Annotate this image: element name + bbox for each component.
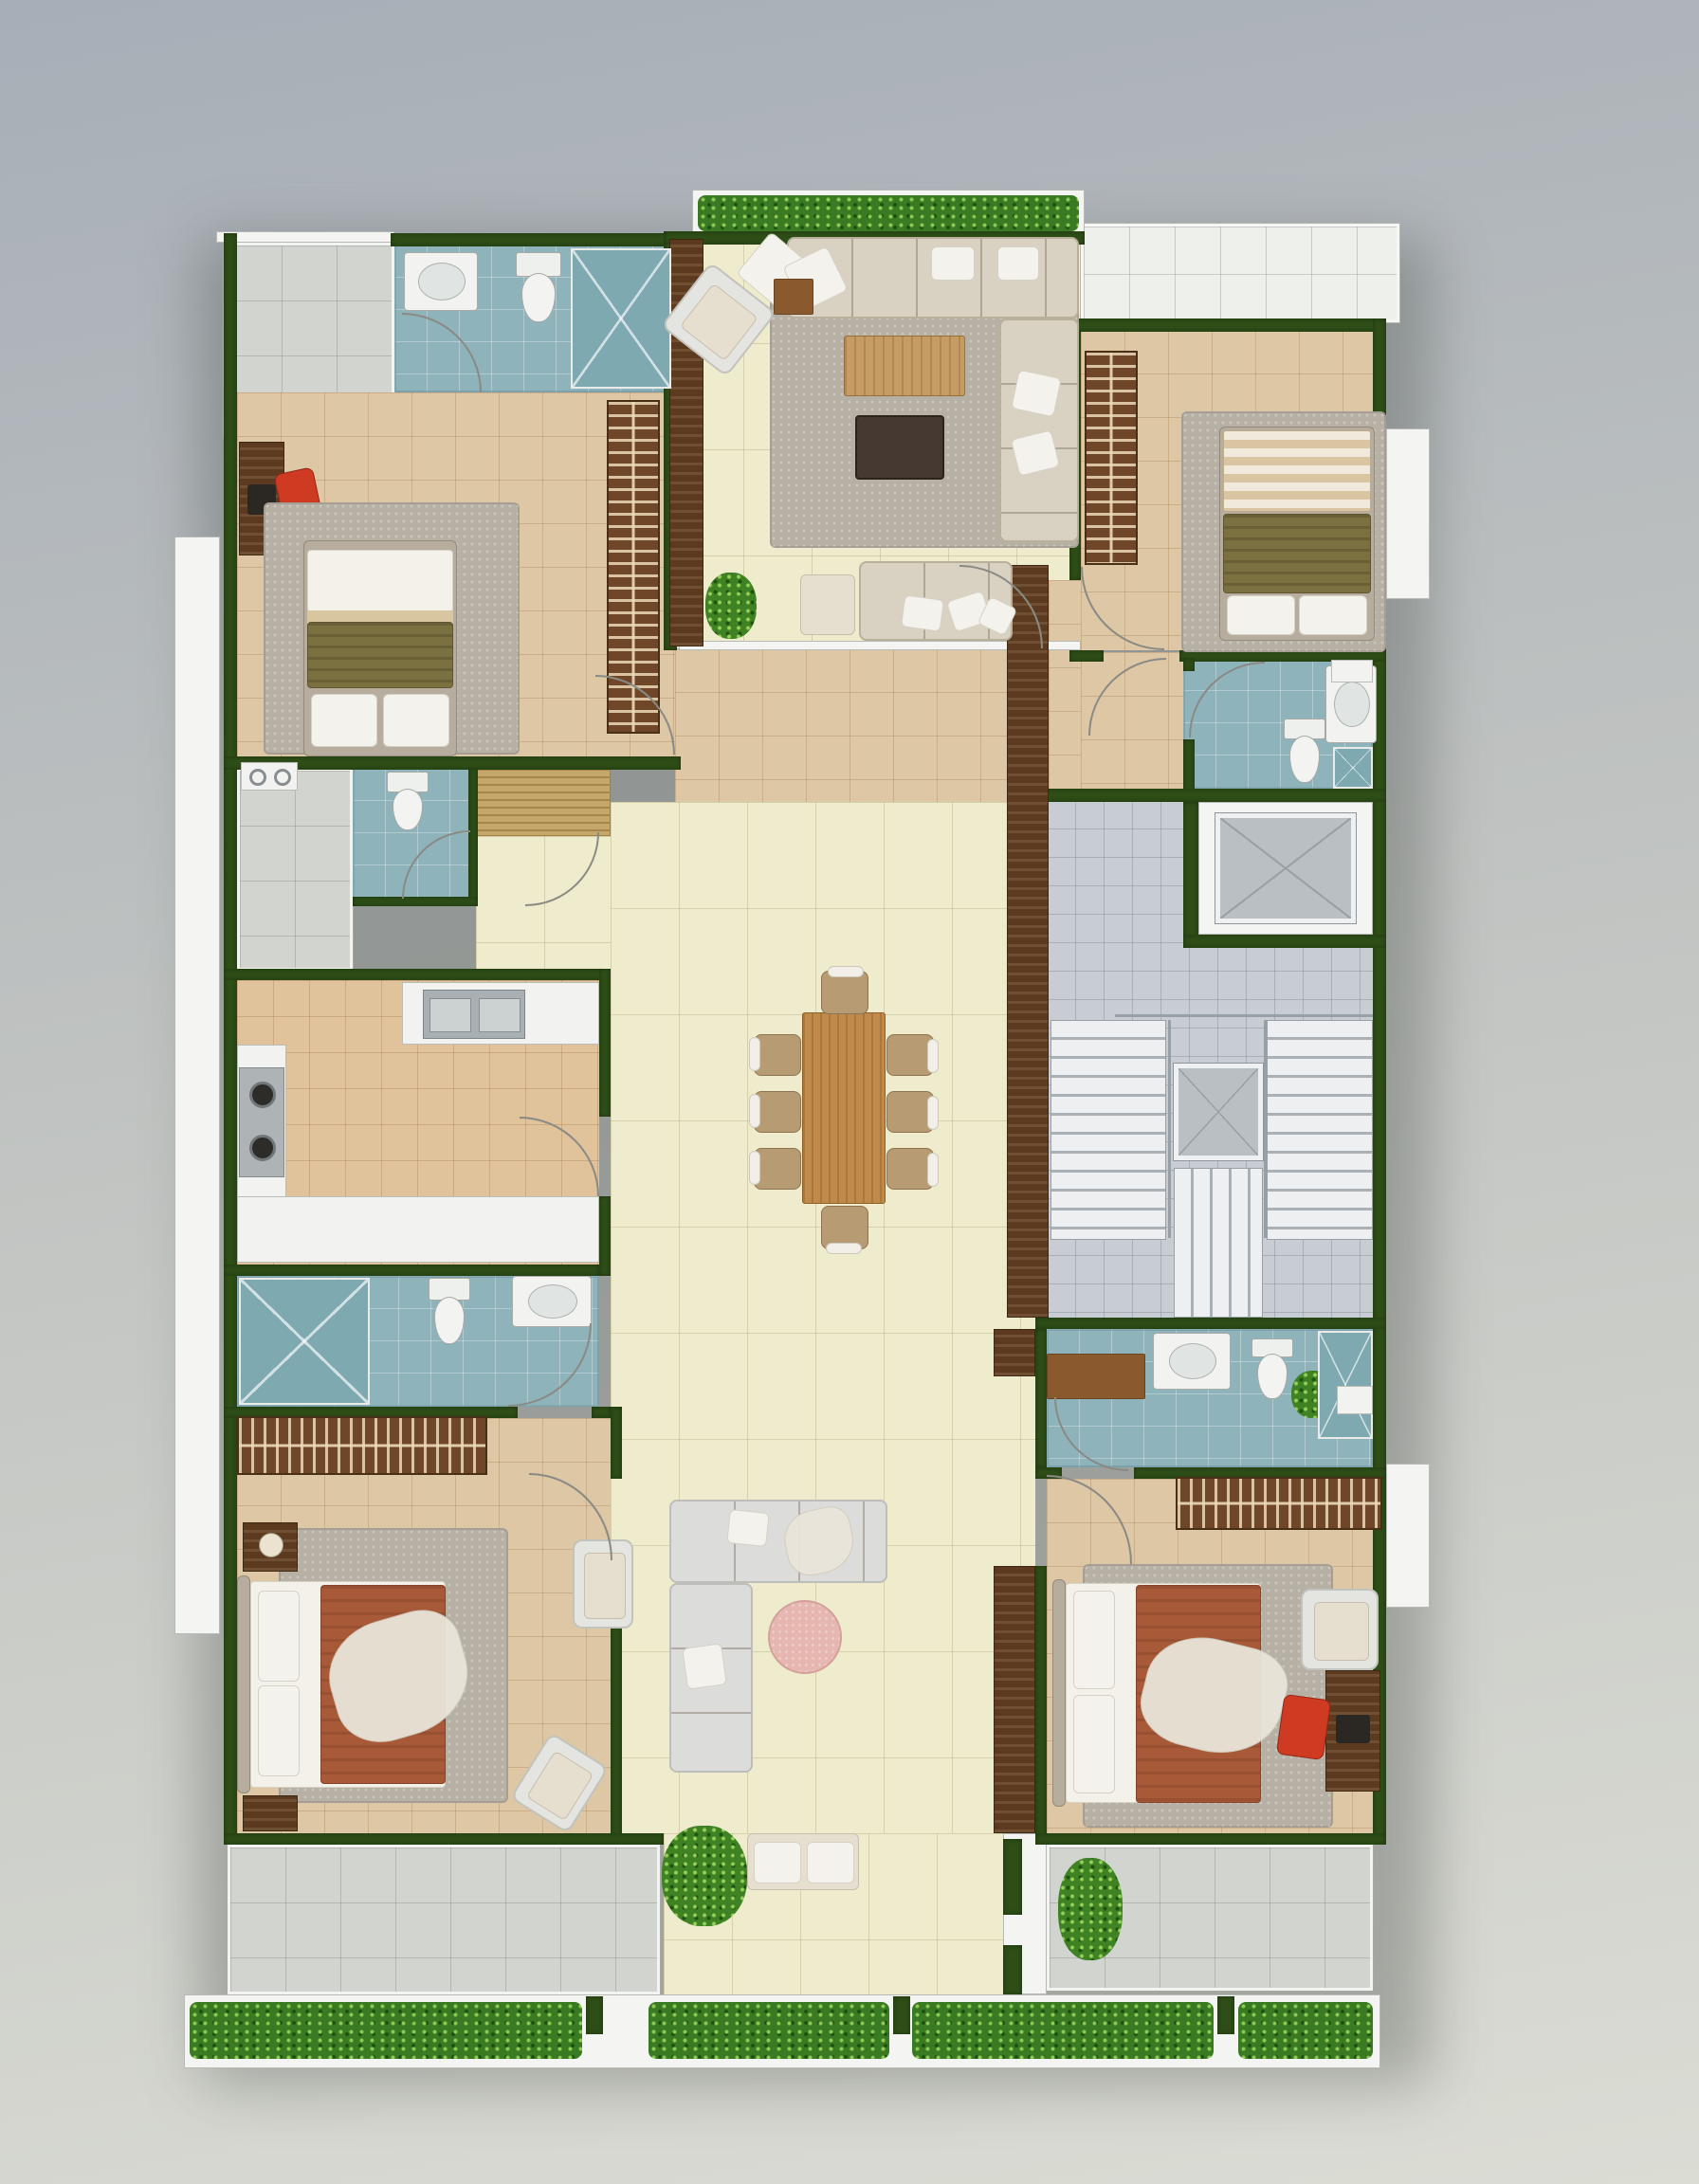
lounge-round-rug [768, 1600, 842, 1674]
wall-kitchen-south [224, 1265, 599, 1276]
basin [1169, 1343, 1216, 1379]
ledge-left [174, 537, 220, 1634]
lounge-sofa-v [669, 1583, 753, 1773]
bed-pillow-1 [1073, 1591, 1115, 1689]
wall-lobby-south [1035, 1318, 1386, 1329]
wall-elevator-left [1183, 802, 1198, 946]
toilet-bowl [1257, 1354, 1288, 1399]
kitchen-stove [239, 1067, 284, 1177]
kitchen-counter-bottom [237, 1196, 599, 1263]
sofa-pillow [901, 594, 944, 632]
bedroom3-desk [1325, 1670, 1380, 1792]
sink-basin-1 [429, 998, 471, 1032]
wall-bedroom2-south-1 [1069, 650, 1104, 662]
dining-chair-r1 [886, 1034, 934, 1076]
toilet-bowl [521, 273, 556, 322]
bed-headboard [237, 1575, 250, 1793]
south-green-2 [1003, 1945, 1022, 1994]
stair-flight-right [1267, 1020, 1373, 1240]
sink-basin-2 [479, 998, 521, 1032]
top-band [216, 231, 394, 243]
sofa-pillow [726, 1509, 770, 1547]
utility-floor [237, 768, 353, 971]
armchair-cushion [1314, 1602, 1369, 1661]
hedge-south-4 [1238, 2002, 1373, 2059]
hedge-south-3 [912, 2002, 1214, 2059]
bedroom3-armchair [1301, 1589, 1379, 1670]
ledge-right-bottom [1386, 1464, 1430, 1608]
terrace-left-floor [228, 1845, 660, 1994]
toilet-bowl [434, 1297, 465, 1344]
lounge-sofa-h [669, 1500, 887, 1583]
lamp [259, 1533, 283, 1557]
chair-back [826, 1243, 862, 1254]
wall-bedroomBL-south [224, 1833, 664, 1845]
stair-duct [1174, 1064, 1263, 1160]
dining-chair-r2 [886, 1091, 934, 1133]
bath3-shower [1318, 1331, 1373, 1439]
chair-back [927, 1096, 939, 1130]
kitchen-sink [423, 990, 525, 1039]
wall-bedroom3-south [1035, 1833, 1386, 1845]
flower [793, 1632, 802, 1642]
bathBL-shower [239, 1278, 370, 1405]
bedroomBL-nightstand-1 [243, 1522, 298, 1572]
wood-panel-bottom [994, 1566, 1035, 1833]
wall-bed3-west-1 [1035, 1329, 1047, 1467]
hedge-south-2 [649, 2002, 889, 2059]
bed-pillow-2 [1073, 1695, 1115, 1793]
bed-pillow-1 [1227, 595, 1295, 635]
basin [1334, 682, 1370, 727]
chair-back [749, 1151, 760, 1185]
laptop [1336, 1715, 1370, 1743]
wall-bed3-west-2 [1035, 1566, 1047, 1845]
sofa-pillow [997, 246, 1039, 281]
wall-bathBL-south-2 [592, 1407, 611, 1418]
stair-flight-left [1050, 1020, 1166, 1240]
chair-back [749, 1037, 760, 1071]
wall-left [224, 233, 237, 1845]
toilet-bowl [393, 789, 423, 830]
sofa-pillow [1011, 370, 1062, 418]
bed-pillow-1 [258, 1591, 300, 1682]
wall-bath2-west-1 [1183, 658, 1195, 671]
flowers-yellow [891, 438, 910, 457]
bath1-toilet [510, 252, 567, 328]
south-bench [747, 1833, 859, 1890]
wall-top-1 [391, 233, 675, 246]
living-side-table [774, 279, 813, 315]
bench-cushion [807, 1842, 854, 1884]
hedge-top [698, 195, 1079, 231]
basin [418, 263, 466, 300]
bed-head [1223, 430, 1371, 512]
chair-back [749, 1094, 760, 1128]
armchair-cushion [680, 282, 758, 361]
stair-rail-1 [1115, 1014, 1373, 1017]
flower [808, 1630, 819, 1642]
balcony2-floor [1081, 224, 1399, 322]
elevator-car [1215, 813, 1356, 923]
bed-pillow-2 [383, 694, 449, 747]
partition-wood [1007, 565, 1049, 1318]
bathBL-sink [512, 1276, 592, 1327]
bath3-sink [1153, 1333, 1231, 1390]
bath3-counter [1047, 1354, 1145, 1399]
bedroomBL-bed [237, 1575, 449, 1793]
wall-bedroomBL-east-1 [611, 1407, 622, 1479]
dining-chair-bottom [821, 1206, 868, 1249]
desk-lamp [1345, 1768, 1359, 1781]
bed-sheet [307, 550, 453, 612]
wc-toilet [383, 772, 432, 834]
mat-floor [476, 768, 611, 836]
bed-blanket [307, 622, 453, 688]
hedge-post-3 [1217, 1996, 1234, 2034]
toilet-bowl [1289, 736, 1320, 783]
hedge-post-2 [893, 1996, 910, 2034]
wall-kitchen-north [224, 969, 611, 980]
bath2-shower [1333, 747, 1373, 789]
ledge-right-top [1386, 428, 1430, 599]
bath3-shelf [1337, 1386, 1373, 1414]
armchair-cushion [584, 1553, 626, 1619]
wall-bedroom2-north [1069, 318, 1386, 332]
utility-unit [241, 762, 298, 791]
living-coffee-table [844, 336, 965, 396]
wall-lobby-north [1035, 789, 1386, 802]
dining-chair-l1 [754, 1034, 801, 1076]
sofa-pillow [682, 1643, 727, 1689]
bed-headboard [1052, 1579, 1066, 1807]
bed-pillow-2 [1299, 595, 1367, 635]
bed-pillow-2 [258, 1685, 300, 1776]
living-plant [705, 573, 757, 639]
stair-rail-3 [1264, 1020, 1267, 1238]
knob-1 [249, 769, 266, 786]
bath3-toilet [1250, 1338, 1295, 1405]
stair-flight-bottom [1174, 1168, 1263, 1318]
bedroom2-bed [1219, 427, 1375, 641]
basin [528, 1284, 577, 1319]
dining-table [802, 1012, 886, 1204]
bedroom3-wardrobe [1176, 1477, 1382, 1530]
stair-rail-2 [1168, 1020, 1171, 1238]
sofa-pillow [1011, 429, 1060, 476]
sofa-throw [779, 1502, 860, 1579]
dining-chair-r3 [886, 1148, 934, 1190]
bedroomBL-wardrobe [237, 1416, 487, 1475]
corridor-floor [675, 648, 1007, 802]
burner-2 [249, 1135, 276, 1161]
bedroomBL-nightstand-2 [243, 1795, 298, 1831]
knob-2 [274, 769, 291, 786]
bath2-toilet [1282, 719, 1327, 789]
wall-kitchen-east-2 [599, 1196, 611, 1276]
wall-bath2-west-2 [1183, 739, 1195, 796]
hedge-post-1 [586, 1996, 603, 2034]
bedroom1-bed [303, 540, 457, 756]
dining-chair-l2 [754, 1091, 801, 1133]
wood-panel-top [994, 1329, 1035, 1376]
bed-pillow-1 [311, 694, 377, 747]
chair-back [927, 1153, 939, 1187]
flowers-leaf [882, 455, 893, 466]
burner-1 [249, 1082, 276, 1108]
dining-chair-l3 [754, 1148, 801, 1190]
living-accent-table [855, 415, 944, 480]
corridor2-floor [1049, 580, 1081, 802]
bath1-sink [404, 252, 478, 311]
south-green-1 [1003, 1839, 1022, 1915]
bed-blanket [1223, 514, 1371, 593]
hedge-south-1 [190, 2002, 582, 2059]
living-ottoman [800, 574, 855, 635]
bath1-shower [571, 248, 671, 389]
bench-cushion [754, 1842, 801, 1884]
dining-chair-top [821, 971, 868, 1014]
bedroom2-wardrobe [1085, 351, 1138, 565]
flower [798, 1644, 813, 1659]
floor-plan [0, 0, 1699, 2184]
bath2-shelf [1331, 660, 1373, 682]
bedroom3-chair [1276, 1694, 1331, 1760]
bedroom3-bed [1052, 1579, 1261, 1807]
south-bush [662, 1826, 747, 1926]
chair-back [828, 966, 864, 977]
living-sofa-right [999, 318, 1079, 542]
terrace-right-bush [1058, 1858, 1123, 1960]
wall-kitchen-east-1 [599, 969, 611, 1117]
sofa-pillow [931, 246, 975, 281]
chair-back [927, 1039, 939, 1073]
wall-elevator-bottom [1183, 935, 1386, 948]
bathBL-toilet [425, 1278, 474, 1350]
